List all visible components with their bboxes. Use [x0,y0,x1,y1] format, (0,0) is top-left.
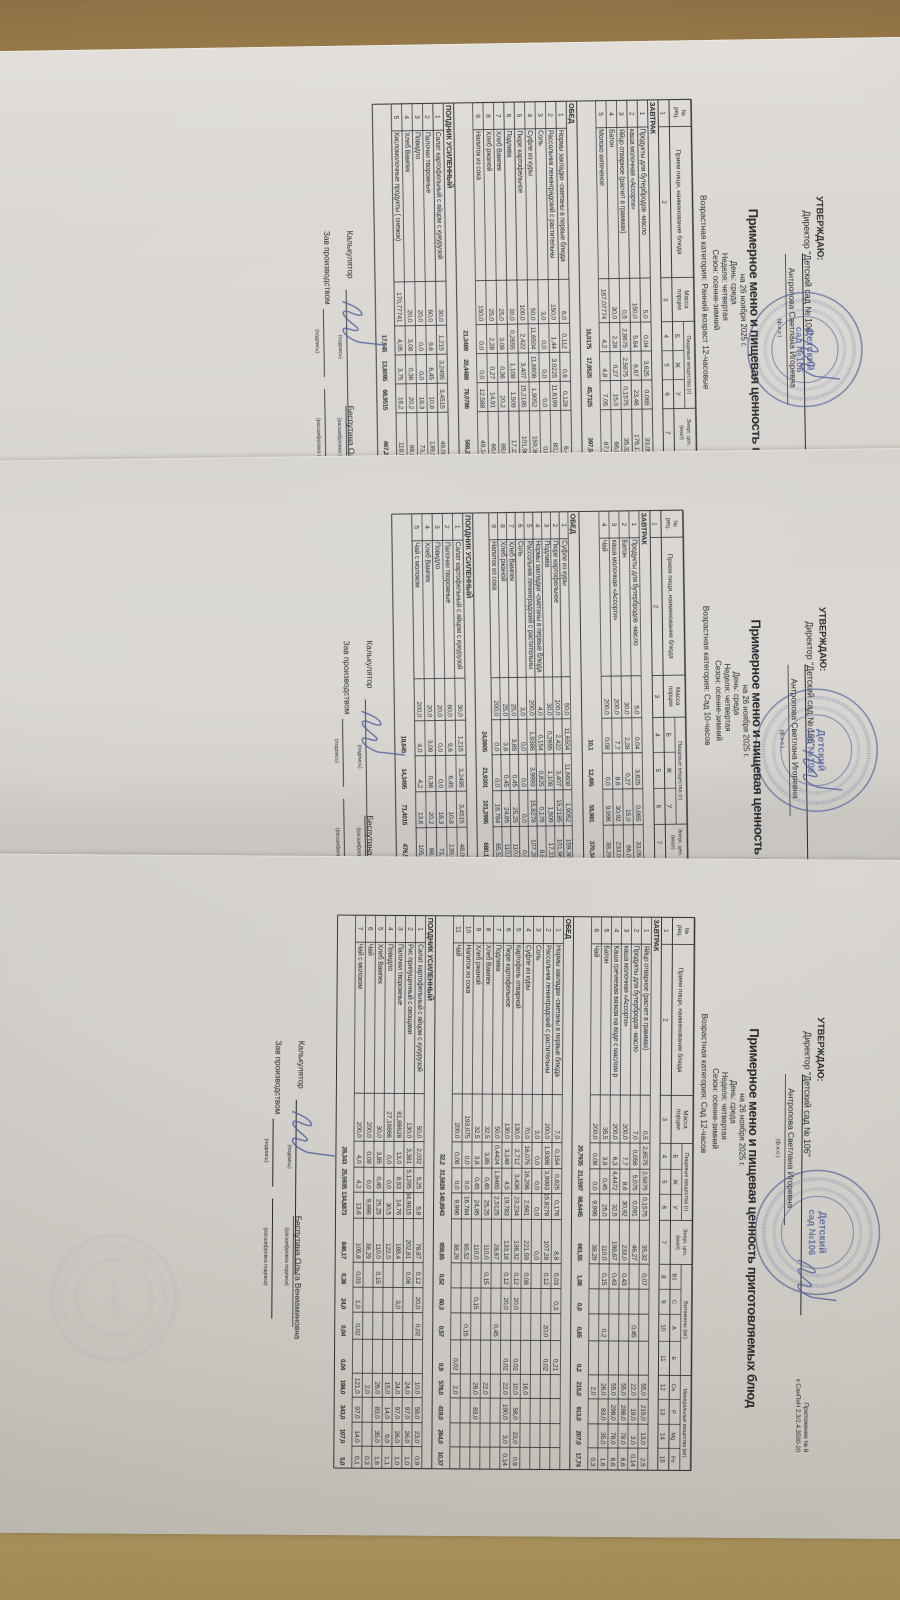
svg-text:0,45: 0,45 [472,1177,479,1190]
svg-text:Палочки творожные: Палочки творожные [424,132,432,194]
svg-text:У: У [674,392,680,396]
svg-text:А: А [670,1326,676,1330]
svg-text:Директор "Детский сад № 106": Директор "Детский сад № 106" [802,1031,813,1157]
svg-text:3: 3 [617,112,624,116]
svg-text:34,9615: 34,9615 [404,1192,411,1216]
svg-text:3: 3 [534,928,541,932]
svg-text:200,0: 200,0 [543,1123,550,1139]
svg-text:188,4: 188,4 [394,1243,401,1259]
svg-text:107,28: 107,28 [529,839,536,859]
svg-text:28,67: 28,67 [492,1244,499,1260]
svg-text:2,5875: 2,5875 [621,357,628,377]
svg-text:каша молочная «Ассорти»: каша молочная «Ассорти» [628,129,636,210]
svg-text:200,0: 200,0 [365,1122,372,1138]
svg-text:110,0: 110,0 [482,1244,489,1260]
svg-text:4,0: 4,0 [536,707,543,716]
svg-text:Хлеб Вампек: Хлеб Вампек [484,945,492,986]
svg-text:0,45: 0,45 [511,774,518,787]
svg-text:60,0: 60,0 [426,309,433,322]
svg-text:Хлеб Вампек: Хлеб Вампек [403,132,412,173]
svg-text:58,0: 58,0 [511,1407,518,1420]
svg-text:10,0: 10,0 [511,1382,518,1395]
svg-text:83,0: 83,0 [471,1407,478,1420]
svg-text:24,85: 24,85 [472,1199,479,1215]
svg-text:101,2995: 101,2995 [481,800,488,825]
svg-text:23,0: 23,0 [413,1431,420,1444]
svg-text:3: 3 [653,695,660,699]
svg-text:Кисломолочные продукты ( снежо: Кисломолочные продукты ( снежок) [392,132,401,241]
svg-text:6,45: 6,45 [447,775,454,788]
svg-text:0,0: 0,0 [493,742,500,751]
svg-text:Салат картофельный с яйцом с к: Салат картофельный с яйцом с кукурузой [454,542,464,670]
svg-text:1,215: 1,215 [437,335,444,352]
svg-text:9: 9 [474,928,481,932]
svg-text:0,04: 0,04 [339,1325,346,1337]
svg-text:Зав производством: Зав производством [341,641,351,715]
svg-text:ЗАВТРАК: ЗАВТРАК [652,919,661,952]
svg-text:170,77741: 170,77741 [395,292,402,323]
svg-text:0,04: 0,04 [633,737,640,750]
svg-text:0,15: 0,15 [374,1271,381,1284]
svg-text:3,08: 3,08 [406,339,413,352]
svg-text:6: 6 [592,928,599,932]
svg-text:Повидло: Повидло [433,542,440,569]
svg-text:198,0: 198,0 [339,1380,346,1395]
svg-text:1,9052: 1,9052 [530,388,537,408]
svg-text:22,0: 22,0 [481,1382,488,1395]
svg-text:32,2: 32,2 [438,1154,445,1166]
svg-text:3: 3 [396,927,403,931]
svg-text:Масса: Масса [682,290,689,309]
svg-text:0,0: 0,0 [437,779,444,788]
svg-text:10: 10 [464,926,471,934]
svg-text:78,0: 78,0 [619,1432,626,1445]
svg-text:661,55: 661,55 [576,1243,583,1261]
svg-text:13: 13 [659,1408,666,1415]
svg-text:0,3: 0,3 [363,1456,370,1465]
svg-text:ПОЛДНИК УСИЛЕННЫЙ: ПОЛДНИК УСИЛЕННЫЙ [463,515,473,598]
svg-text:140,8943: 140,8943 [438,1192,445,1217]
svg-text:2,28: 2,28 [623,737,630,750]
svg-text:202,81: 202,81 [404,1239,411,1259]
svg-text:27,19866: 27,19866 [385,1111,392,1138]
svg-text:(расшифровка подписи): (расшифровка подписи) [262,1227,268,1286]
svg-text:Прием пищи, наименование блюда: Прием пищи, наименование блюда [676,967,685,1072]
svg-text:38,29: 38,29 [590,1244,597,1260]
svg-text:30,92: 30,92 [620,1201,627,1217]
svg-text:3: 3 [661,1118,668,1122]
svg-text:1: 1 [434,115,441,119]
svg-text:Чай: Чай [454,944,462,956]
svg-text:Батон: Батон [602,945,609,963]
svg-text:1: 1 [557,113,564,117]
svg-text:71,4015: 71,4015 [400,804,407,826]
svg-text:УТВЕРЖДАЮ:: УТВЕРЖДАЮ: [814,196,825,260]
svg-text:7,7: 7,7 [613,741,620,750]
svg-text:Напиток из сока: Напиток из сока [490,541,498,590]
svg-text:13,6: 13,6 [417,812,424,825]
svg-text:(ккал): (ккал) [674,1235,680,1250]
svg-text:0,45: 0,45 [600,1178,607,1191]
svg-text:Сезон: осенне-зимний: Сезон: осенне-зимний [711,250,721,331]
svg-text:День: среда: День: среда [732,671,742,715]
svg-text:Б: Б [671,1154,677,1158]
svg-text:Каша гречневая вязкая на воде: Каша гречневая вязкая на воде с маслом р [611,945,619,1077]
svg-text:3,407: 3,407 [555,770,562,787]
svg-text:№: № [680,110,687,117]
svg-text:0,0: 0,0 [532,1207,539,1216]
svg-text:1,0: 1,0 [354,1300,361,1309]
svg-text:№: № [671,520,678,527]
svg-text:4,5: 4,5 [502,1181,509,1190]
svg-text:50,0: 50,0 [529,308,536,321]
svg-text:Р: Р [670,1410,676,1414]
svg-text:16,784: 16,784 [494,804,501,824]
svg-text:Антропова Светлана Игоревна: Антропова Светлана Игоревна [786,1088,797,1208]
svg-text:343,0: 343,0 [339,1405,346,1420]
svg-text:20,7935: 20,7935 [576,1145,583,1167]
svg-text:Рассольник ленинградский с рас: Рассольник ленинградский с растительны [543,945,552,1074]
svg-text:20,4488: 20,4488 [462,359,469,381]
svg-text:150,0: 150,0 [477,305,484,322]
svg-text:Возрастная категория: Ранний в: Возрастная категория: Ранний возраст 12-… [698,195,710,390]
svg-text:30,0: 30,0 [622,702,629,715]
svg-text:Неделя: четвертая: Неделя: четвертая [720,1072,729,1140]
svg-text:Пищевые вещества (г): Пищевые вещества (г) [683,1153,689,1212]
svg-text:16,2: 16,2 [397,397,404,410]
svg-text:0,0: 0,0 [540,340,547,349]
svg-text:День: среда: День: среда [729,261,739,305]
svg-text:УТВЕРЖДАЮ:: УТВЕРЖДАЮ: [817,607,828,671]
svg-text:2,0: 2,0 [451,1385,458,1394]
svg-text:Суфле из куры: Суфле из куры [526,130,534,176]
svg-text:16,784: 16,784 [462,1196,469,1216]
svg-text:Ж: Ж [674,362,680,368]
svg-text:6: 6 [504,928,511,932]
svg-text:(ккал): (ккал) [669,835,675,850]
svg-text:9,0: 9,0 [383,1434,390,1443]
svg-text:(подпись): (подпись) [333,739,339,763]
svg-text:107,28: 107,28 [542,1240,549,1260]
svg-text:3: 3 [542,524,549,528]
svg-text:25,25: 25,25 [511,807,518,824]
svg-text:13,6: 13,6 [354,1202,361,1215]
svg-text:0,0: 0,0 [575,1303,582,1312]
svg-text:2: 2 [551,523,558,527]
svg-text:0,2: 0,2 [599,1329,606,1338]
svg-text:16,0175: 16,0175 [585,328,592,350]
svg-text:5: 5 [663,363,670,367]
svg-text:0,27: 0,27 [488,366,495,379]
svg-text:Рассольник ленинградский с рас: Рассольник ленинградский с растительны [547,130,557,259]
svg-text:0,154: 0,154 [537,735,544,752]
svg-text:6,67: 6,67 [632,364,639,377]
svg-text:4: 4 [600,523,607,527]
svg-text:207,0: 207,0 [574,1430,581,1445]
svg-text:100,0: 100,0 [518,304,525,321]
svg-text:18,645: 18,645 [399,735,406,753]
svg-text:200,0: 200,0 [527,700,534,717]
svg-text:С: С [670,1300,676,1304]
svg-text:55,0: 55,0 [639,1383,646,1396]
svg-text:Пищевые вещества (г): Пищевые вещества (г) [685,335,692,394]
svg-text:38,29: 38,29 [452,1243,459,1259]
svg-text:(ккал): (ккал) [678,425,684,440]
svg-text:5: 5 [602,929,609,933]
svg-text:32,5: 32,5 [483,1126,490,1139]
svg-text:23,0: 23,0 [511,1431,518,1444]
svg-text:97,0: 97,0 [403,1407,410,1420]
svg-text:0,9: 0,9 [413,1456,420,1465]
svg-text:Суфле из куры: Суфле из куры [560,540,568,586]
svg-text:(ф.и.о.): (ф.и.о.) [774,1139,780,1158]
svg-text:0,36: 0,36 [407,368,414,381]
svg-text:0,065: 0,065 [643,389,650,406]
svg-text:3: 3 [622,929,629,933]
svg-text:200,0: 200,0 [612,698,619,715]
svg-text:4: 4 [403,115,410,119]
svg-text:846,17: 846,17 [340,1242,347,1260]
svg-text:6: 6 [516,524,523,528]
svg-text:4: 4 [386,927,393,931]
svg-text:959,65: 959,65 [438,1242,445,1260]
svg-text:66,0: 66,0 [624,845,631,858]
svg-text:2: 2 [628,112,635,116]
svg-text:Сезон: осенне-зимний: Сезон: осенне-зимний [710,1068,720,1149]
svg-text:Детский: Детский [815,729,828,771]
svg-text:5: 5 [376,927,383,931]
svg-text:1: 1 [659,111,666,115]
svg-text:12,588: 12,588 [478,388,485,408]
svg-text:6: 6 [660,1206,667,1210]
svg-text:0,08: 0,08 [603,737,610,750]
svg-text:60,0: 60,0 [446,704,453,717]
svg-text:0,02: 0,02 [511,1358,518,1371]
svg-text:46,27: 46,27 [630,1245,637,1261]
svg-text:4,2: 4,2 [416,779,423,788]
svg-text:3,381: 3,381 [405,1148,412,1164]
svg-text:Пищевые вещества (г): Пищевые вещества (г) [676,741,683,800]
svg-text:15,2185: 15,2185 [519,384,526,408]
svg-text:7: 7 [494,928,501,932]
svg-text:26,0: 26,0 [393,1431,400,1444]
svg-text:0,0: 0,0 [384,1180,391,1189]
svg-text:сад №106: сад №106 [804,727,816,773]
svg-text:4,0: 4,0 [355,1155,362,1164]
svg-text:26,343: 26,343 [340,1147,347,1165]
svg-text:0,9: 0,9 [437,1363,444,1372]
svg-text:Продукты для бутербродов -масл: Продукты для бутербродов -масло [631,946,640,1053]
svg-text:9,996: 9,996 [590,1200,597,1216]
svg-text:3,75: 3,75 [396,368,403,381]
svg-text:0,27: 0,27 [623,773,630,786]
svg-text:150,0: 150,0 [549,304,556,321]
svg-text:4,2: 4,2 [600,339,607,348]
svg-text:6: 6 [366,927,373,931]
svg-text:3,85: 3,85 [510,738,517,751]
svg-text:7: 7 [660,1241,667,1245]
svg-text:298,0: 298,0 [609,1404,616,1420]
svg-text:1: 1 [630,522,637,526]
svg-text:0,6: 0,6 [561,369,568,378]
svg-text:0,52: 0,52 [438,1274,445,1286]
svg-text:20,2: 20,2 [407,397,414,410]
svg-text:Приложение № 8: Приложение № 8 [802,1402,809,1452]
svg-text:5: 5 [597,112,604,116]
svg-text:Хлеб Вампек: Хлеб Вампек [423,542,432,583]
svg-text:25,0: 25,0 [487,308,494,321]
svg-text:0,0: 0,0 [520,778,527,787]
svg-text:8,53: 8,53 [394,1177,401,1190]
svg-text:0,3: 0,3 [552,1301,559,1310]
svg-text:78,0: 78,0 [609,1432,616,1445]
svg-text:4: 4 [607,112,614,116]
svg-text:30,92: 30,92 [614,805,621,822]
svg-text:2: 2 [620,523,627,527]
svg-text:ОБЕД: ОБЕД [564,919,573,939]
svg-text:презенте: презенте [110,1279,120,1317]
svg-text:У: У [665,804,671,808]
svg-text:сад №106: сад №106 [793,327,805,373]
svg-text:30,0: 30,0 [610,307,617,320]
svg-text:0,0: 0,0 [417,342,424,351]
svg-text:107,0: 107,0 [338,1429,345,1444]
svg-text:18,3: 18,3 [437,812,444,825]
svg-text:Прием пищи, наименование блюда: Прием пищи, наименование блюда [666,554,675,659]
svg-text:20,2: 20,2 [427,812,434,825]
svg-text:0,43: 0,43 [620,1273,627,1286]
svg-text:ЗАВТРАК: ЗАВТРАК [648,102,658,135]
svg-text:45,7325: 45,7325 [586,386,593,408]
svg-text:каша молочная «Ассорти»: каша молочная «Ассорти» [610,540,618,621]
svg-text:Палочки творожные: Палочки творожные [396,944,403,1006]
svg-text:3,08: 3,08 [426,740,433,753]
svg-text:рец.: рец. [673,107,679,119]
svg-text:Хлеб Вампек: Хлеб Вампек [495,131,504,172]
svg-text:65,52: 65,52 [462,1243,469,1259]
svg-text:0,0: 0,0 [493,778,500,787]
svg-text:2: 2 [423,115,430,119]
svg-text:0,15: 0,15 [600,1273,607,1286]
svg-text:2: 2 [544,928,551,932]
svg-text:порции: порции [667,686,674,707]
svg-text:на 26 ноября 2025 г.: на 26 ноября 2025 г. [737,1093,747,1166]
svg-text:Беспутина Ольга Вениаминовна: Беспутина Ольга Вениаминовна [293,1216,303,1340]
svg-text:30,0: 30,0 [545,703,552,716]
svg-text:298,0: 298,0 [619,1405,626,1421]
svg-text:100,0: 100,0 [554,699,561,716]
svg-text:17,74: 17,74 [574,1452,581,1467]
svg-text:23,234: 23,234 [512,1196,519,1216]
svg-text:(расшифровка подписи): (расшифровка подписи) [283,1228,289,1287]
svg-text:Яйцо отварное (расчет в грамма: Яйцо отварное (расчет в граммах) [618,129,628,234]
svg-text:Б: Б [673,334,679,338]
svg-text:0,056: 0,056 [631,1150,638,1166]
svg-text:16,075: 16,075 [523,1145,530,1165]
svg-text:0,02: 0,02 [501,1358,508,1371]
svg-text:0,08: 0,08 [453,1152,460,1165]
svg-text:Хлеб ржаной: Хлеб ржаной [499,541,508,581]
svg-text:0,14: 0,14 [501,1453,508,1466]
svg-text:Чай: Чай [600,540,608,552]
svg-text:0,36: 0,36 [498,366,505,379]
svg-text:0,825: 0,825 [552,1174,559,1190]
svg-text:8,6: 8,6 [613,777,620,786]
svg-text:5: 5 [515,114,522,118]
svg-text:Прием пищи, наименование блюда: Прием пищи, наименование блюда [674,149,684,254]
svg-text:15,8278: 15,8278 [542,1193,549,1217]
svg-text:7: 7 [664,431,671,435]
svg-text:Чай: Чай [366,944,374,956]
svg-text:Неделя: четвертая: Неделя: четвертая [722,663,732,731]
svg-text:Б: Б [664,733,670,737]
svg-text:2: 2 [546,113,553,117]
svg-text:1,8465: 1,8465 [492,1170,499,1190]
svg-text:20,0: 20,0 [425,705,432,718]
svg-text:Чай: Чай [592,945,600,957]
svg-text:4: 4 [653,733,660,737]
svg-text:0,45: 0,45 [629,1325,636,1338]
svg-text:0,128: 0,128 [561,391,568,408]
svg-text:5: 5 [660,1180,667,1184]
svg-text:200,0: 200,0 [591,1123,598,1139]
svg-text:130,0: 130,0 [513,1123,520,1139]
svg-text:0,2655: 0,2655 [508,330,515,350]
svg-text:8: 8 [498,524,505,528]
svg-text:150,0: 150,0 [631,303,638,320]
svg-text:0,091: 0,091 [630,1201,637,1217]
svg-text:15,0: 15,0 [611,394,618,407]
svg-text:221,59: 221,59 [522,1240,529,1260]
svg-text:23,46: 23,46 [632,390,639,407]
svg-text:0,08: 0,08 [522,1272,529,1285]
svg-text:14,3495: 14,3495 [400,768,407,790]
svg-text:10: 10 [659,1324,666,1331]
svg-text:0,0: 0,0 [532,1251,539,1260]
svg-text:3,0: 3,0 [539,311,546,320]
svg-text:913,0: 913,0 [575,1406,582,1421]
svg-text:25,0: 25,0 [510,703,517,716]
svg-text:20,0: 20,0 [436,705,443,718]
svg-text:10,37: 10,37 [436,1451,443,1466]
svg-text:5,0: 5,0 [641,310,648,319]
svg-text:0,0: 0,0 [540,369,547,378]
svg-text:110,0: 110,0 [472,1244,479,1260]
svg-text:0,0: 0,0 [417,371,424,380]
svg-text:0,0: 0,0 [463,1156,470,1165]
svg-text:215,0: 215,0 [639,1405,646,1421]
svg-text:Салат картофельный с яйцом с к: Салат картофельный с яйцом с кукурузой [434,132,444,260]
svg-text:13,0: 13,0 [639,1432,646,1445]
svg-text:18,3: 18,3 [417,397,424,410]
svg-text:ОБЕД: ОБЕД [567,103,576,123]
svg-text:Калькулятор: Калькулятор [345,231,355,280]
svg-text:24,0: 24,0 [339,1298,346,1310]
svg-text:14: 14 [658,1433,665,1440]
svg-text:20,0: 20,0 [414,1297,421,1310]
svg-text:3,9993: 3,9993 [528,767,535,787]
svg-text:0,27: 0,27 [611,365,618,378]
svg-text:0,0: 0,0 [533,1156,540,1165]
svg-text:14,91: 14,91 [488,392,495,409]
svg-text:Энерг. цен.: Энерг. цен. [685,419,691,447]
svg-text:38,29: 38,29 [604,842,611,859]
svg-text:2,0: 2,0 [589,1386,596,1395]
svg-text:25,0: 25,0 [600,1204,607,1217]
svg-text:19,783: 19,783 [502,1196,509,1216]
svg-text:0,36: 0,36 [426,776,433,789]
svg-text:Энерг. цен.: Энерг. цен. [681,1229,687,1257]
